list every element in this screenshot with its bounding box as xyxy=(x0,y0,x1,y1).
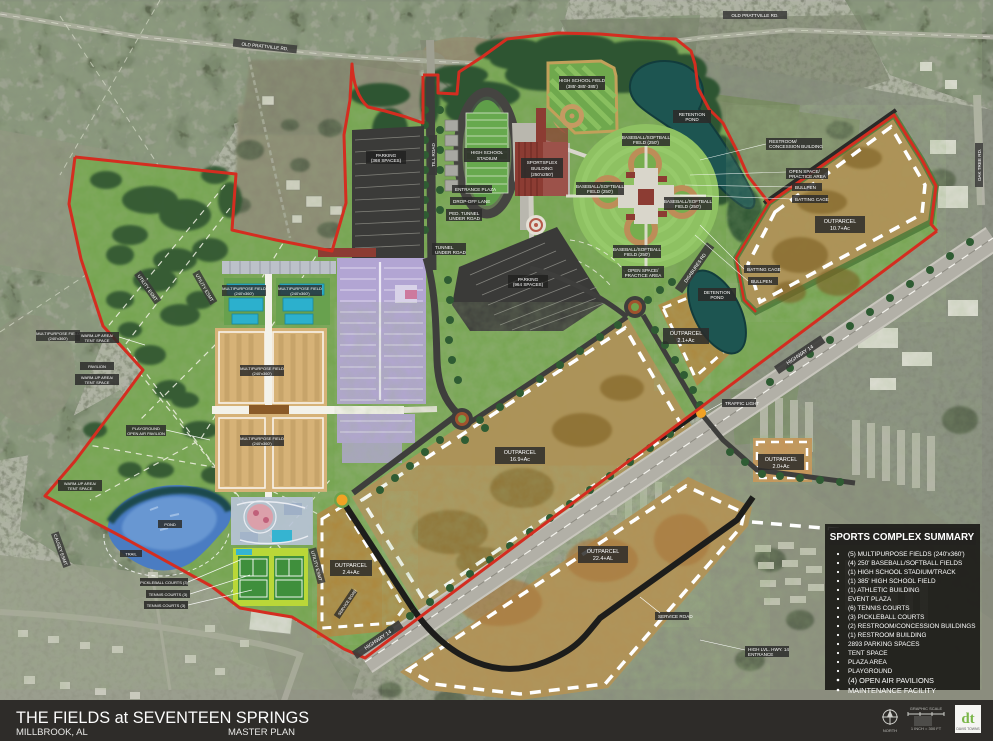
svg-text:16.9+Ac: 16.9+Ac xyxy=(510,457,530,463)
svg-text:NORTH: NORTH xyxy=(883,728,897,733)
svg-text:TILL ROAD: TILL ROAD xyxy=(431,143,436,167)
svg-text:OUTPARCEL: OUTPARCEL xyxy=(504,450,537,456)
svg-text:(240'x360'): (240'x360') xyxy=(252,441,272,446)
svg-text:TRAFFIC LIGHT: TRAFFIC LIGHT xyxy=(725,401,759,406)
svg-text:PRACTICE AREA: PRACTICE AREA xyxy=(625,273,663,278)
svg-text:SPORTSPLEX: SPORTSPLEX xyxy=(527,160,558,165)
svg-text:2893 PARKING SPACES: 2893 PARKING SPACES xyxy=(848,641,920,648)
svg-text:(3) PICKLEBALL COURTS: (3) PICKLEBALL COURTS xyxy=(848,614,924,621)
svg-text:DROP-OFF LANE: DROP-OFF LANE xyxy=(453,199,490,204)
svg-text:dt: dt xyxy=(961,711,974,727)
svg-text:FIELD (250'): FIELD (250') xyxy=(624,252,650,257)
svg-text:POND: POND xyxy=(685,117,699,122)
svg-text:PLAZA AREA: PLAZA AREA xyxy=(848,659,887,666)
svg-text:(240'x360'): (240'x360') xyxy=(290,291,310,296)
svg-text:BATTING CAGE: BATTING CAGE xyxy=(747,267,781,272)
svg-text:OAK TREE RD.: OAK TREE RD. xyxy=(977,149,982,181)
svg-text:HIGH SCHOOL: HIGH SCHOOL xyxy=(471,150,504,155)
svg-text:OUTPARCEL: OUTPARCEL xyxy=(824,219,857,225)
svg-text:OUTPARCEL: OUTPARCEL xyxy=(670,331,703,337)
svg-text:TENNIS COURTS (3): TENNIS COURTS (3) xyxy=(147,603,186,608)
svg-text:OUTPARCEL: OUTPARCEL xyxy=(587,549,620,555)
svg-text:(4) 250' BASEBALL/SOFTBALL FI: (4) 250' BASEBALL/SOFTBALL FIELDS xyxy=(848,560,962,567)
svg-text:TENT SPACE: TENT SPACE xyxy=(848,650,888,657)
svg-text:EVENT PLAZA: EVENT PLAZA xyxy=(848,596,892,603)
svg-text:TENNIS COURTS (3): TENNIS COURTS (3) xyxy=(149,592,188,597)
svg-text:PRACTICE AREA: PRACTICE AREA xyxy=(789,174,827,179)
svg-text:(2) RESTROOM/CONCESSION BUILDI: (2) RESTROOM/CONCESSION BUILDINGS xyxy=(848,623,975,630)
svg-text:PLAYGROUND: PLAYGROUND xyxy=(848,668,893,675)
svg-text:BATTING CAGE: BATTING CAGE xyxy=(795,197,829,202)
svg-text:(240'x360'): (240'x360') xyxy=(48,336,68,341)
svg-text:TRAIL: TRAIL xyxy=(125,552,137,557)
svg-text:ENTRANCE: ENTRANCE xyxy=(748,652,773,657)
svg-text:(6) TENNIS COURTS: (6) TENNIS COURTS xyxy=(848,605,910,612)
svg-text:FIELD (250'): FIELD (250') xyxy=(675,204,701,209)
svg-text:ENTRANCE PLAZA: ENTRANCE PLAZA xyxy=(455,187,497,192)
svg-text:(1) HIGH SCHOOL STADIUM/TRACK: (1) HIGH SCHOOL STADIUM/TRACK xyxy=(848,569,956,576)
svg-text:2.0+Ac: 2.0+Ac xyxy=(773,464,790,470)
svg-text:GRAPHIC SCALE: GRAPHIC SCALE xyxy=(910,706,943,711)
svg-text:(385'-385'-385'): (385'-385'-385') xyxy=(566,84,598,89)
svg-text:(964 SPACES): (964 SPACES) xyxy=(513,282,544,287)
svg-text:MILLBROOK, AL: MILLBROOK, AL xyxy=(16,727,88,738)
svg-text:SPORTS COMPLEX SUMMARY: SPORTS COMPLEX SUMMARY xyxy=(830,532,975,543)
svg-text:POND: POND xyxy=(710,295,724,300)
svg-text:CONCESSION BUILDING: CONCESSION BUILDING xyxy=(769,144,823,149)
svg-text:POND: POND xyxy=(164,522,176,527)
svg-text:2.4+Ac: 2.4+Ac xyxy=(343,570,360,576)
svg-text:SERVICE ROAD: SERVICE ROAD xyxy=(658,614,693,619)
svg-text:(368 SPACES): (368 SPACES) xyxy=(371,158,402,163)
svg-text:HIGH SCHOOL FIELD: HIGH SCHOOL FIELD xyxy=(559,78,606,83)
svg-text:BULLPEN: BULLPEN xyxy=(795,185,816,190)
svg-text:OLD PRATTVILLE RD.: OLD PRATTVILLE RD. xyxy=(731,13,778,18)
svg-text:(1) RESTROOM BUILDING: (1) RESTROOM BUILDING xyxy=(848,632,926,639)
svg-text:MASTER PLAN: MASTER PLAN xyxy=(228,727,295,738)
svg-text:OUTPARCEL: OUTPARCEL xyxy=(335,563,368,569)
svg-text:DAVIS TOWNS: DAVIS TOWNS xyxy=(956,727,980,731)
svg-text:TENT SPACE: TENT SPACE xyxy=(68,486,93,491)
svg-text:(240'x360'): (240'x360') xyxy=(252,371,272,376)
svg-text:(4) OPEN AIR PAVILIONS: (4) OPEN AIR PAVILIONS xyxy=(848,676,934,685)
svg-text:(1) 385' HIGH SCHOOL FIELD: (1) 385' HIGH SCHOOL FIELD xyxy=(848,578,936,585)
svg-text:BULLPEN: BULLPEN xyxy=(751,279,772,284)
svg-text:10.7+Ac: 10.7+Ac xyxy=(830,226,850,232)
svg-text:TENT SPACE: TENT SPACE xyxy=(85,338,110,343)
svg-text:OUTPARCEL: OUTPARCEL xyxy=(765,457,798,463)
svg-text:22.4+AL: 22.4+AL xyxy=(593,556,613,562)
svg-text:(250'x250'): (250'x250') xyxy=(531,172,554,177)
svg-text:STADIUM: STADIUM xyxy=(477,156,498,161)
svg-text:UNDER ROAD: UNDER ROAD xyxy=(435,250,467,255)
svg-text:TENT SPACE: TENT SPACE xyxy=(85,380,110,385)
svg-text:(1) ATHLETIC BUILDING: (1) ATHLETIC BUILDING xyxy=(848,587,920,594)
svg-text:1 INCH = 300 FT: 1 INCH = 300 FT xyxy=(911,726,942,731)
svg-text:BUILDING: BUILDING xyxy=(531,166,553,171)
svg-text:(5) MULTIPURPOSE FIELDS (240'x: (5) MULTIPURPOSE FIELDS (240'x360') xyxy=(848,551,965,558)
svg-text:PICKLEBALL COURTS (3): PICKLEBALL COURTS (3) xyxy=(140,580,188,585)
svg-text:FIELD (250'): FIELD (250') xyxy=(633,140,659,145)
svg-text:OPEN AIR PAVILION: OPEN AIR PAVILION xyxy=(127,431,165,436)
svg-text:MAINTENANCE FACILITY: MAINTENANCE FACILITY xyxy=(848,686,936,695)
svg-text:(240'x360'): (240'x360') xyxy=(234,291,254,296)
svg-text:PAVILION: PAVILION xyxy=(88,364,106,369)
svg-text:2.1+Ac: 2.1+Ac xyxy=(678,338,695,344)
svg-text:THE FIELDS at SEVENTEEN SPRING: THE FIELDS at SEVENTEEN SPRINGS xyxy=(16,709,309,727)
svg-text:UNDER ROAD: UNDER ROAD xyxy=(449,216,481,221)
svg-text:FIELD (250'): FIELD (250') xyxy=(587,189,613,194)
